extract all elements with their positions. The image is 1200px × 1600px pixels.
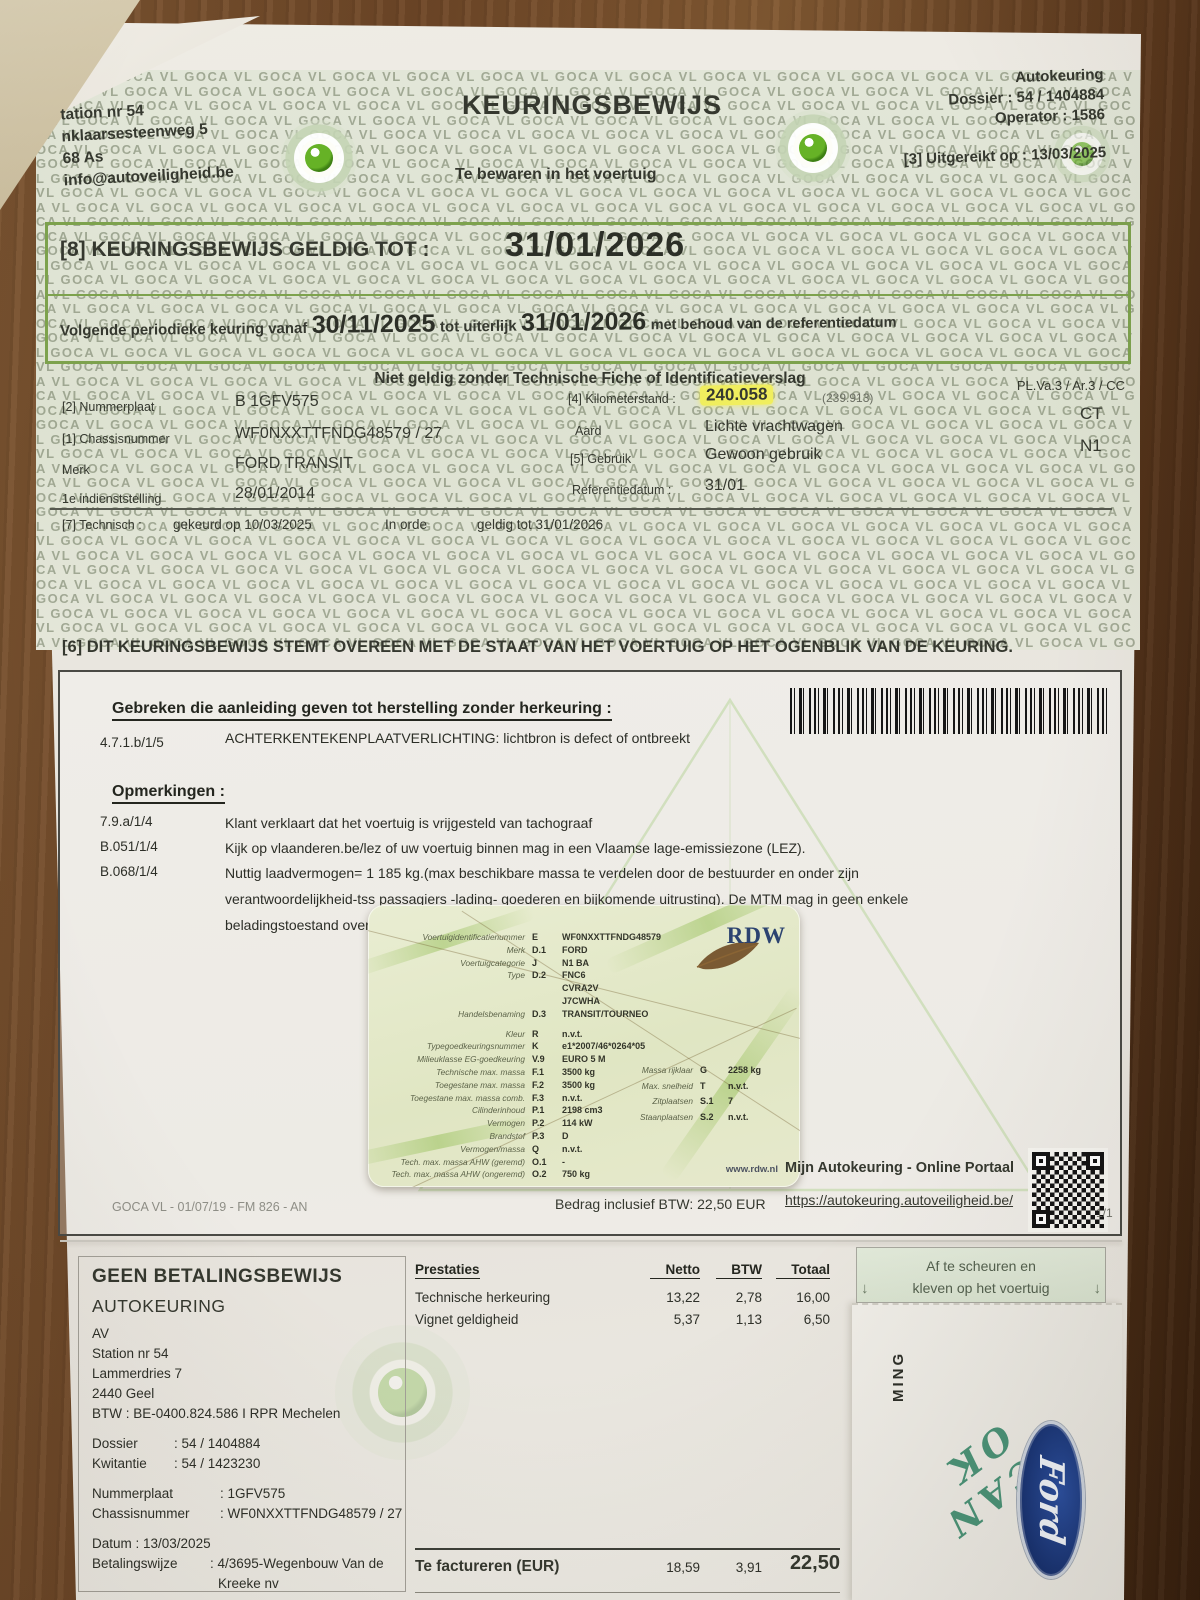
- remark-code: 7.9.a/1/4: [100, 814, 153, 829]
- form-reference: GOCA VL - 01/07/19 - FM 826 - AN: [112, 1200, 307, 1214]
- table-row-netto: 13,22: [650, 1290, 700, 1305]
- receipt-date: Datum : 13/03/2025: [92, 1536, 211, 1551]
- technisch-label: [7] Technisch :: [62, 518, 142, 532]
- gebruik-value: Gewoon gebruik: [705, 446, 822, 464]
- table-row-btw: 1,13: [716, 1312, 762, 1327]
- total-btw: 3,91: [716, 1560, 762, 1575]
- technisch-gekeurd: gekeurd op 10/03/2025: [173, 517, 312, 532]
- table-row-totaal: 6,50: [776, 1312, 830, 1327]
- validity-box-divider: [45, 294, 1128, 296]
- ref-date-label: Referentiedatum :: [572, 483, 671, 497]
- table-header-prestaties: Prestaties: [415, 1262, 480, 1279]
- receipt-btw: BTW : BE-0400.824.586 I RPR Mechelen: [92, 1406, 340, 1421]
- page-number: 1/1: [1096, 1206, 1113, 1220]
- first-use-label: 1e indienststelling: [62, 492, 161, 506]
- photo-of-inspection-certificate: GOCA VL GOCA VL GOCA VL GOCA VL GOCA VL …: [0, 0, 1200, 1600]
- ref-date-value: 31/01: [705, 477, 745, 495]
- km-label: [4] Kilometerstand :: [568, 392, 676, 406]
- gebruik-label: [5] Gebruik: [570, 452, 631, 466]
- receipt-address-line: Lammerdries 7: [92, 1366, 182, 1381]
- chassis-value: WF0NXXTTFNDG48579 / 27: [235, 425, 442, 443]
- receipt-org: AUTOKEURING: [92, 1296, 226, 1317]
- table-header-netto: Netto: [650, 1262, 700, 1279]
- tear-off-sticker-note: Af te scheuren en kleven op het voertuig…: [856, 1247, 1106, 1303]
- receipt-payment-method-2: Kreeke nv: [218, 1576, 279, 1591]
- receipt-chassis: Chassisnummer: WF0NXXTTFNDG48579 / 27: [92, 1506, 402, 1521]
- document-title: KEURINGSBEWIJS: [462, 90, 722, 121]
- next-prefix: Volgende periodieke keuring vanaf: [60, 320, 307, 340]
- chassis-label: [1] Chassisnummer: [62, 432, 170, 446]
- receipt-kwitantie: Kwitantie: 54 / 1423230: [92, 1456, 260, 1471]
- table-row-totaal: 16,00: [776, 1290, 830, 1305]
- receipt-address-line: Station nr 54: [92, 1346, 169, 1361]
- km-value-highlighted: 240.058: [700, 384, 774, 405]
- remark-code: B.051/1/4: [100, 839, 158, 854]
- next-mid: tot uiterlijk: [440, 318, 517, 336]
- defect-code: 4.7.1.b/1/5: [100, 735, 164, 750]
- technisch-status: In orde: [385, 517, 427, 532]
- station-address: tation nr 54 nklaarsesteenweg 5 68 As in…: [60, 96, 234, 193]
- n1-category: N1: [1080, 436, 1102, 456]
- class-code: PL.Va.3 / Ar.3 / CC: [935, 378, 1125, 393]
- total-netto: 18,59: [650, 1560, 700, 1575]
- header-right-block: Autokeuring Dossier : 54 / 1404884 Opera…: [703, 65, 1106, 177]
- remark-text: Klant verklaart dat het voertuig is vrij…: [225, 810, 592, 836]
- km-previous-value: (239.913): [822, 391, 873, 405]
- total-label: Te factureren (EUR): [415, 1558, 559, 1576]
- table-row-label: Vignet geldigheid: [415, 1312, 518, 1327]
- keep-in-vehicle-note: Te bewaren in het voertuig: [455, 166, 657, 184]
- down-arrow-icon: ↓: [861, 1278, 869, 1300]
- remarks-title: Opmerkingen :: [112, 783, 225, 804]
- not-valid-without-notice: Niet geldig zonder Technische Fiche of I…: [290, 370, 890, 388]
- aard-value: Lichte vrachtwagen: [705, 418, 843, 436]
- portal-title: Mijn Autokeuring - Online Portaal: [785, 1160, 1014, 1176]
- remark-code: B.068/1/4: [100, 864, 158, 879]
- divider-line: [50, 508, 1112, 510]
- receipt-av: AV: [92, 1326, 109, 1341]
- plate-value: B 1GFV575: [235, 393, 319, 411]
- barcode: [790, 688, 1108, 734]
- vertical-cut-text: MING: [890, 1312, 907, 1402]
- table-row-btw: 2,78: [716, 1290, 762, 1305]
- rdw-data-left: VoertuigidentificatienummerEWF0NXXTTFNDG…: [376, 931, 752, 1181]
- merk-value: FORD TRANSIT: [235, 455, 353, 473]
- goca-eye-icon: [281, 120, 357, 196]
- table-row-netto: 5,37: [650, 1312, 700, 1327]
- table-row-label: Technische herkeuring: [415, 1290, 550, 1305]
- receipt-payment-method: Betalingswijze: 4/3695-Wegenbouw Van de: [92, 1556, 384, 1571]
- rdw-registration-card: RDW VoertuigidentificatienummerEWF0NXXTT…: [368, 905, 800, 1187]
- down-arrow-icon: ↓: [1094, 1278, 1102, 1300]
- aard-label: Aard: [575, 424, 601, 438]
- rdw-data-right: Massa rijklaarG2258 kg Max. snelheidTn.v…: [596, 1063, 798, 1125]
- receipt-address-line: 2440 Geel: [92, 1386, 154, 1401]
- no-payment-proof-title: GEEN BETALINGSBEWIJS: [92, 1266, 342, 1288]
- table-header-totaal: Totaal: [776, 1262, 830, 1279]
- merk-label: Merk: [62, 463, 90, 477]
- qr-code: [1032, 1152, 1104, 1228]
- receipt-plate: Nummerplaat: 1GFV575: [92, 1486, 285, 1501]
- defect-text: ACHTERKENTEKENPLAATVERLICHTING: lichtbro…: [225, 729, 690, 747]
- table-header-btw: BTW: [716, 1262, 762, 1279]
- defects-title: Gebreken die aanleiding geven tot herste…: [112, 700, 612, 721]
- amount-incl-vat: Bedrag inclusief BTW: 22,50 EUR: [555, 1196, 766, 1212]
- total-rule-top: [415, 1548, 840, 1550]
- ct-code: CT: [1080, 404, 1103, 424]
- portal-url: https://autokeuring.autoveiligheid.be/: [785, 1192, 1013, 1208]
- total-rule-bottom: [415, 1592, 840, 1593]
- remark-text: Kijk op vlaanderen.be/lez of uw voertuig…: [225, 835, 806, 861]
- valid-until-date: 31/01/2026: [505, 226, 685, 265]
- next-until-date: 31/01/2026: [521, 307, 646, 336]
- page-fold-line: [60, 1240, 1122, 1242]
- rdw-website: www.rdw.nl: [726, 1164, 778, 1175]
- statement-line: [6] DIT KEURINGSBEWIJS STEMT OVEREEN MET…: [62, 638, 1013, 657]
- technisch-geldig: geldig tot 31/01/2026: [477, 517, 603, 532]
- receipt-dossier: Dossier: 54 / 1404884: [92, 1436, 260, 1451]
- next-from-date: 30/11/2025: [312, 310, 436, 339]
- valid-until-label: [8] KEURINGSBEWIJS GELDIG TOT :: [60, 238, 429, 262]
- first-use-value: 28/01/2014: [235, 485, 315, 503]
- ford-logo: Ford: [1017, 1421, 1085, 1579]
- next-suffix: met behoud van de referentiedatum: [651, 315, 897, 334]
- plate-label: [2] Nummerplaat: [62, 400, 154, 414]
- total-amount: 22,50: [778, 1552, 840, 1575]
